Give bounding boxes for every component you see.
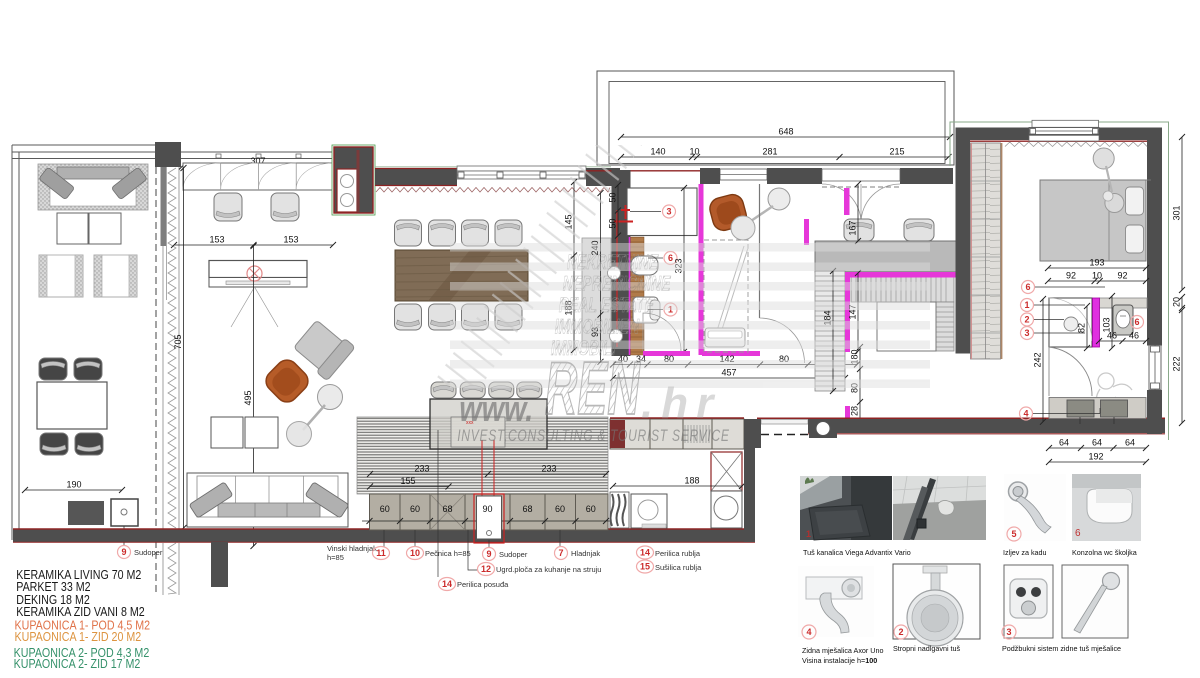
svg-text:155: 155	[400, 476, 415, 486]
svg-text:REAL ESTATE: REAL ESTATE	[559, 293, 655, 316]
svg-text:Perilica posuđa: Perilica posuđa	[457, 580, 509, 589]
svg-text:REN: REN	[545, 347, 641, 431]
svg-text:9: 9	[486, 549, 491, 559]
svg-text:11: 11	[376, 548, 386, 558]
svg-text:Sušilica rublja: Sušilica rublja	[655, 563, 702, 572]
svg-text:60: 60	[410, 504, 420, 514]
svg-text:705: 705	[173, 334, 183, 349]
svg-text:64: 64	[1125, 438, 1135, 448]
svg-text:Pečnica h=85: Pečnica h=85	[425, 549, 471, 558]
svg-text:Hladnjak: Hladnjak	[571, 549, 600, 558]
svg-text:3: 3	[666, 207, 671, 217]
svg-text:Sudoper: Sudoper	[499, 550, 528, 559]
svg-text:6: 6	[1134, 317, 1139, 327]
svg-text:82: 82	[1077, 323, 1087, 333]
svg-text:648: 648	[778, 127, 793, 137]
svg-text:h=85: h=85	[327, 553, 344, 562]
svg-text:20: 20	[1172, 297, 1182, 307]
svg-text:90: 90	[482, 504, 492, 514]
svg-text:92: 92	[1117, 271, 1127, 281]
svg-text:Visina instalacije h=100: Visina instalacije h=100	[802, 656, 877, 665]
svg-text:4: 4	[1023, 409, 1028, 419]
svg-text:6: 6	[1075, 528, 1081, 539]
svg-text:6: 6	[1025, 282, 1030, 292]
svg-text:1: 1	[806, 529, 811, 539]
svg-text:60: 60	[555, 504, 565, 514]
svg-text:192: 192	[1088, 452, 1103, 462]
svg-text:10: 10	[410, 548, 420, 558]
svg-text:7: 7	[558, 548, 563, 558]
svg-text:188: 188	[684, 476, 699, 486]
svg-text:Stropni nadlgavni tuš: Stropni nadlgavni tuš	[893, 644, 961, 653]
svg-text:Vinski hladnjak: Vinski hladnjak	[327, 544, 377, 553]
svg-text:3: 3	[1024, 328, 1029, 338]
svg-text:190: 190	[66, 480, 81, 490]
svg-text:Konzolna wc školjka: Konzolna wc školjka	[1072, 548, 1137, 557]
svg-text:281: 281	[762, 147, 777, 157]
svg-text:495: 495	[243, 390, 253, 405]
svg-text:4: 4	[806, 627, 811, 637]
svg-text:INVEST,CONSULTING & TOURIST SE: INVEST,CONSULTING & TOURIST SERVICE	[457, 427, 729, 445]
svg-text:9: 9	[121, 547, 126, 557]
svg-text:12: 12	[481, 564, 491, 574]
svg-text:6: 6	[668, 253, 673, 263]
svg-text:KERAMIKA ZID VANI 8 M2: KERAMIKA ZID VANI 8 M2	[16, 605, 144, 619]
svg-text:Izljev za kadu: Izljev za kadu	[1003, 548, 1047, 557]
svg-text:15: 15	[640, 562, 650, 572]
svg-text:222: 222	[1172, 356, 1182, 371]
svg-text:2: 2	[1024, 315, 1029, 325]
svg-text:60: 60	[380, 504, 390, 514]
svg-text:1: 1	[1024, 300, 1029, 310]
svg-text:242: 242	[1033, 352, 1043, 367]
svg-text:68: 68	[442, 504, 452, 514]
svg-text:50: 50	[608, 218, 618, 228]
svg-text:NEPREMIČNINE: NEPREMIČNINE	[563, 271, 672, 296]
svg-text:215: 215	[889, 147, 904, 157]
svg-text:Sudoper: Sudoper	[134, 548, 163, 557]
svg-text:153: 153	[283, 235, 298, 245]
svg-text:28: 28	[850, 406, 860, 416]
svg-text:PARKET 33 M2: PARKET 33 M2	[16, 580, 90, 594]
svg-text:46: 46	[1129, 331, 1139, 341]
svg-text:457: 457	[721, 368, 736, 378]
svg-text:14: 14	[442, 579, 452, 589]
svg-text:3: 3	[1006, 627, 1011, 637]
svg-text:KUPAONICA 2- ZID 17 M2: KUPAONICA 2- ZID 17 M2	[14, 657, 141, 671]
svg-text:233: 233	[414, 464, 429, 474]
svg-text:153: 153	[209, 235, 224, 245]
svg-text:301: 301	[1172, 205, 1182, 220]
svg-text:167: 167	[848, 220, 858, 235]
svg-text:Podžbukni sistem zidne tuš mje: Podžbukni sistem zidne tuš mješalice	[1002, 644, 1121, 653]
svg-text:Zidna mješalica Axor Uno: Zidna mješalica Axor Uno	[802, 646, 884, 655]
svg-text:14: 14	[640, 548, 650, 558]
svg-text:92: 92	[1066, 271, 1076, 281]
svg-text:64: 64	[1059, 438, 1069, 448]
svg-text:Tuš kanalica Viega Advantix Va: Tuš kanalica Viega Advantix Vario	[803, 548, 911, 557]
svg-text:NEKRETNINE: NEKRETNINE	[567, 250, 659, 273]
svg-text:5: 5	[1011, 529, 1016, 539]
svg-text:Ugrd.ploča za kuhanje na struj: Ugrd.ploča za kuhanje na struju	[496, 565, 601, 574]
svg-text:www.: www.	[459, 388, 533, 429]
svg-text:.hr: .hr	[641, 379, 721, 428]
svg-text:KUPAONICA 1- ZID 20 M2: KUPAONICA 1- ZID 20 M2	[15, 630, 142, 644]
svg-text:140: 140	[650, 147, 665, 157]
svg-text:193: 193	[1089, 258, 1104, 268]
svg-text:Perilica rublja: Perilica rublja	[655, 549, 701, 558]
svg-text:2: 2	[898, 627, 903, 637]
svg-text:IMMOBILIEN: IMMOBILIEN	[555, 315, 640, 338]
svg-text:233: 233	[541, 464, 556, 474]
svg-text:46: 46	[1107, 331, 1117, 341]
svg-text:60: 60	[586, 504, 596, 514]
svg-text:64: 64	[1092, 438, 1102, 448]
svg-text:68: 68	[522, 504, 532, 514]
